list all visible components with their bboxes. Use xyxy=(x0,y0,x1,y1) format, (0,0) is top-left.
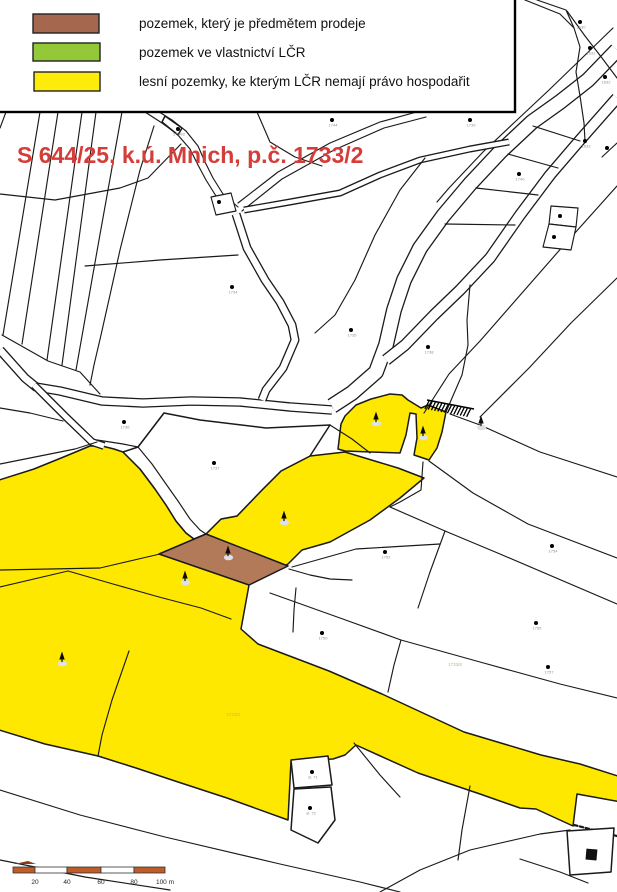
svg-text:1755: 1755 xyxy=(533,626,543,631)
svg-text:1734/2: 1734/2 xyxy=(173,132,186,137)
svg-text:1738: 1738 xyxy=(425,350,435,355)
svg-text:1739: 1739 xyxy=(467,123,477,128)
svg-text:st. 72: st. 72 xyxy=(306,811,317,816)
svg-text:1632: 1632 xyxy=(602,80,612,85)
svg-text:1744: 1744 xyxy=(329,123,339,128)
svg-text:1630: 1630 xyxy=(577,25,587,30)
svg-text:1733/8: 1733/8 xyxy=(448,662,462,667)
svg-text:1735: 1735 xyxy=(348,333,358,338)
svg-text:80: 80 xyxy=(130,879,138,886)
svg-text:20: 20 xyxy=(31,879,39,886)
svg-text:1737: 1737 xyxy=(211,466,221,471)
svg-text:1734: 1734 xyxy=(229,290,239,295)
svg-text:1754: 1754 xyxy=(549,549,559,554)
svg-text:1633: 1633 xyxy=(582,144,592,149)
svg-text:1740: 1740 xyxy=(516,177,526,182)
svg-text:1736: 1736 xyxy=(121,425,131,430)
svg-text:pozemek ve vlastnictví LČR: pozemek ve vlastnictví LČR xyxy=(139,45,306,60)
svg-text:S 644/25, k.ú. Mnich, p.č. 173: S 644/25, k.ú. Mnich, p.č. 1733/2 xyxy=(17,142,363,168)
svg-text:1750: 1750 xyxy=(319,636,329,641)
svg-text:pozemek, který je předmětem pr: pozemek, který je předmětem prodeje xyxy=(139,16,366,31)
svg-text:1757: 1757 xyxy=(545,670,555,675)
svg-text:lesní pozemky, ke kterým LČR n: lesní pozemky, ke kterým LČR nemají práv… xyxy=(139,74,470,89)
svg-text:st. 71: st. 71 xyxy=(308,775,319,780)
svg-text:1631: 1631 xyxy=(587,51,597,56)
svg-text:100 m: 100 m xyxy=(156,879,174,886)
svg-text:60: 60 xyxy=(97,879,105,886)
svg-text:1733/3: 1733/3 xyxy=(226,712,240,717)
svg-text:1752: 1752 xyxy=(382,555,392,560)
svg-text:40: 40 xyxy=(63,879,71,886)
